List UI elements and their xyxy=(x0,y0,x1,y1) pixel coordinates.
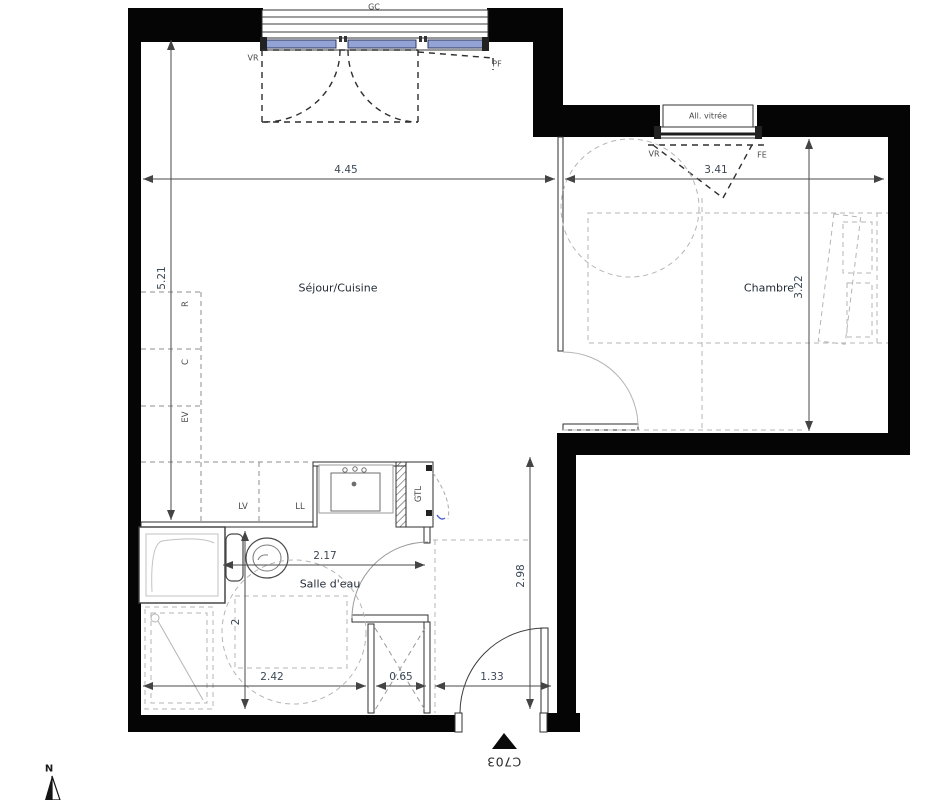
refrigerator-label: R xyxy=(181,301,191,307)
dim-sejour-depth: 5.21 xyxy=(156,266,168,289)
dishwasher-label: LV xyxy=(238,502,248,512)
cooktop-label: C xyxy=(181,359,191,365)
sink-ev-label: EV xyxy=(181,411,191,422)
dim-sde-width: 2.17 xyxy=(313,550,336,562)
fe-label: FE xyxy=(757,151,767,160)
room-chambre: Chambre xyxy=(744,282,794,295)
dim-sde-depth: 2 xyxy=(230,619,242,626)
north-label: N xyxy=(45,764,53,775)
gtl-label: GTL xyxy=(414,486,424,502)
vr-chambre-label: VR xyxy=(648,150,659,159)
apartment-code: C703 xyxy=(487,755,522,770)
gc-label: GC xyxy=(368,3,380,12)
labels-layer: GC VR PF All. vitrée VR FE 4.45 3.41 5.2… xyxy=(0,0,949,800)
dim-hall-depth: 2.98 xyxy=(515,564,527,587)
room-sejour-cuisine: Séjour/Cuisine xyxy=(299,282,378,295)
dim-entry-width: 1.33 xyxy=(480,671,503,683)
dim-closet-width: 0.65 xyxy=(389,671,412,683)
vr-sejour-label: VR xyxy=(247,54,258,63)
dim-sejour-width: 4.45 xyxy=(334,164,357,176)
washer-label: LL xyxy=(295,502,304,512)
all-vitree-label: All. vitrée xyxy=(689,112,727,121)
floor-plan: GC VR PF All. vitrée VR FE 4.45 3.41 5.2… xyxy=(0,0,949,800)
dim-chambre-depth: 3.22 xyxy=(793,275,805,298)
dim-chambre-width: 3.41 xyxy=(704,164,727,176)
room-salle-deau: Salle d'eau xyxy=(300,578,361,591)
dim-sde-bottom: 2.42 xyxy=(260,671,283,683)
pf-label: PF xyxy=(492,60,501,69)
